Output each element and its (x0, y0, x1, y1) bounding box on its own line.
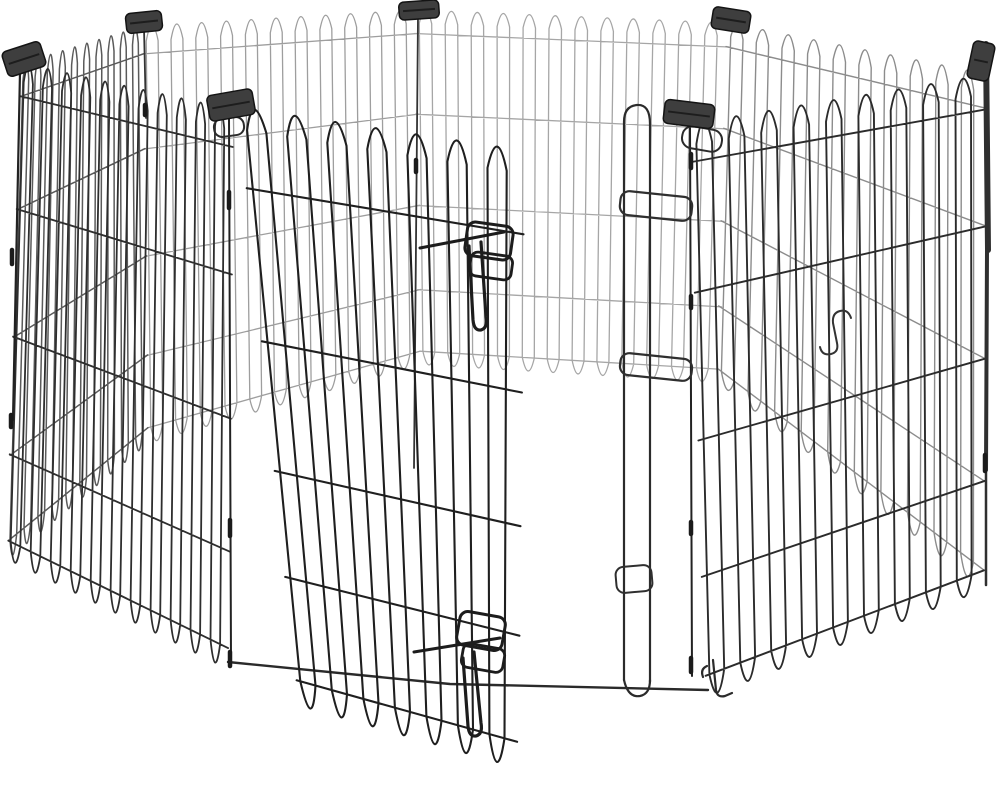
latch-catch-bracket-lower (615, 564, 653, 593)
corner-clip-front-left (206, 88, 256, 122)
right-corner-bar-b (986, 250, 987, 470)
wire-panel-door (247, 110, 524, 762)
corner-clip-back-left (125, 10, 163, 34)
corner-clip-back (398, 0, 439, 20)
top-latch-bar (420, 232, 504, 248)
corner-clip-front-right (663, 99, 716, 129)
product-photo (0, 0, 1000, 785)
pet-exercise-pen-illustration (0, 0, 1000, 785)
s-hook (820, 311, 851, 355)
corner-clip-right (966, 40, 995, 82)
corner-clip-back-right (711, 6, 752, 34)
wire-panel-left (8, 28, 148, 555)
wire-pen-svg (0, 0, 1000, 785)
